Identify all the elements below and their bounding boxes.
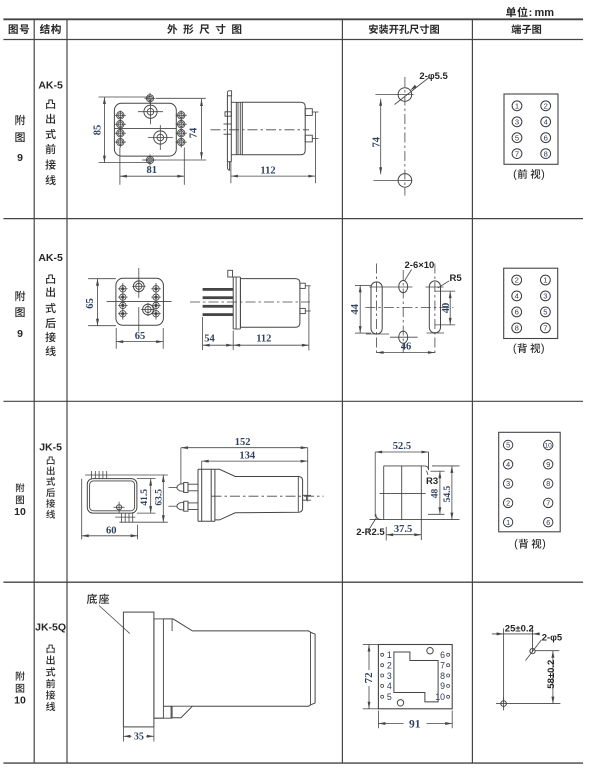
- svg-text:74: 74: [371, 136, 382, 147]
- svg-text:5: 5: [515, 133, 519, 142]
- svg-text:5: 5: [506, 441, 510, 450]
- svg-text:25±0.2: 25±0.2: [505, 623, 534, 634]
- svg-text:3: 3: [506, 479, 510, 488]
- svg-text:7: 7: [543, 324, 547, 333]
- svg-text:2-6×10: 2-6×10: [405, 260, 435, 271]
- svg-text:1: 1: [387, 650, 392, 660]
- svg-text:JK-5Q: JK-5Q: [35, 622, 66, 634]
- svg-text:44: 44: [350, 303, 361, 314]
- svg-text::: :: [529, 7, 533, 19]
- svg-text:65: 65: [85, 298, 96, 309]
- svg-text:4: 4: [544, 118, 548, 127]
- svg-text:35: 35: [134, 732, 144, 743]
- svg-text:6: 6: [546, 518, 550, 527]
- svg-text:3: 3: [543, 292, 547, 301]
- svg-text:91: 91: [409, 718, 421, 730]
- svg-text:4: 4: [387, 681, 392, 691]
- svg-text:48: 48: [430, 489, 440, 499]
- svg-text:8: 8: [440, 671, 445, 681]
- svg-text:1: 1: [515, 102, 519, 111]
- svg-text:2: 2: [515, 276, 519, 285]
- svg-text:(: (: [513, 168, 517, 180]
- svg-text:): ): [541, 168, 545, 180]
- svg-text:4: 4: [515, 292, 519, 301]
- svg-text:72: 72: [363, 672, 375, 684]
- svg-text:(: (: [514, 538, 518, 550]
- svg-text:2: 2: [387, 661, 392, 671]
- svg-text:10: 10: [14, 506, 26, 518]
- svg-text:5: 5: [387, 692, 392, 702]
- svg-text:41.5: 41.5: [140, 489, 150, 506]
- svg-text:81: 81: [147, 165, 158, 176]
- svg-text:AK-5: AK-5: [38, 252, 63, 264]
- svg-text:7: 7: [440, 661, 445, 671]
- svg-text:10: 10: [435, 692, 445, 702]
- svg-text:): ): [542, 538, 546, 550]
- svg-text:2-φ5: 2-φ5: [542, 633, 563, 644]
- svg-text:1: 1: [506, 518, 510, 527]
- svg-text:2: 2: [506, 499, 510, 508]
- svg-text:4: 4: [506, 460, 510, 469]
- svg-text:63.5: 63.5: [154, 489, 164, 506]
- svg-text:9: 9: [440, 681, 445, 691]
- svg-text:3: 3: [387, 671, 392, 681]
- svg-text:54.5: 54.5: [443, 485, 453, 502]
- svg-text:65: 65: [135, 331, 146, 342]
- svg-text:134: 134: [239, 450, 256, 461]
- svg-text:152: 152: [235, 437, 251, 448]
- svg-text:10: 10: [545, 442, 553, 449]
- svg-text:2: 2: [544, 102, 548, 111]
- svg-text:(: (: [513, 343, 517, 355]
- svg-text:mm: mm: [535, 7, 555, 19]
- svg-text:9: 9: [17, 152, 23, 164]
- svg-text:9: 9: [17, 328, 23, 340]
- svg-text:R5: R5: [450, 273, 463, 284]
- svg-text:74: 74: [189, 127, 200, 138]
- svg-text:112: 112: [256, 333, 271, 344]
- svg-text:2-R2.5: 2-R2.5: [356, 527, 385, 538]
- svg-text:6: 6: [440, 650, 445, 660]
- svg-text:8: 8: [515, 324, 519, 333]
- svg-text:7: 7: [515, 149, 519, 158]
- svg-text:R3: R3: [426, 476, 438, 487]
- svg-text:6: 6: [544, 133, 548, 142]
- svg-text:5: 5: [543, 308, 547, 317]
- svg-text:7: 7: [546, 499, 550, 508]
- svg-text:60: 60: [106, 525, 117, 536]
- svg-text:8: 8: [546, 479, 550, 488]
- svg-text:AK-5: AK-5: [38, 79, 63, 91]
- svg-text:10: 10: [14, 695, 26, 707]
- svg-text:58±0.2: 58±0.2: [546, 660, 557, 689]
- svg-text:85: 85: [92, 125, 103, 136]
- svg-text:112: 112: [260, 166, 275, 177]
- svg-text:3: 3: [515, 118, 519, 127]
- svg-text:6: 6: [515, 308, 519, 317]
- svg-text:): ): [541, 343, 545, 355]
- svg-text:1: 1: [543, 276, 547, 285]
- svg-text:37.5: 37.5: [394, 524, 412, 535]
- svg-text:54: 54: [204, 333, 215, 344]
- svg-text:8: 8: [544, 149, 548, 158]
- svg-text:46: 46: [401, 342, 412, 353]
- svg-text:2-φ5.5: 2-φ5.5: [419, 71, 448, 82]
- svg-text:40: 40: [441, 303, 452, 314]
- svg-text:JK-5: JK-5: [39, 442, 62, 454]
- svg-text:52.5: 52.5: [393, 441, 411, 452]
- svg-text:9: 9: [546, 460, 550, 469]
